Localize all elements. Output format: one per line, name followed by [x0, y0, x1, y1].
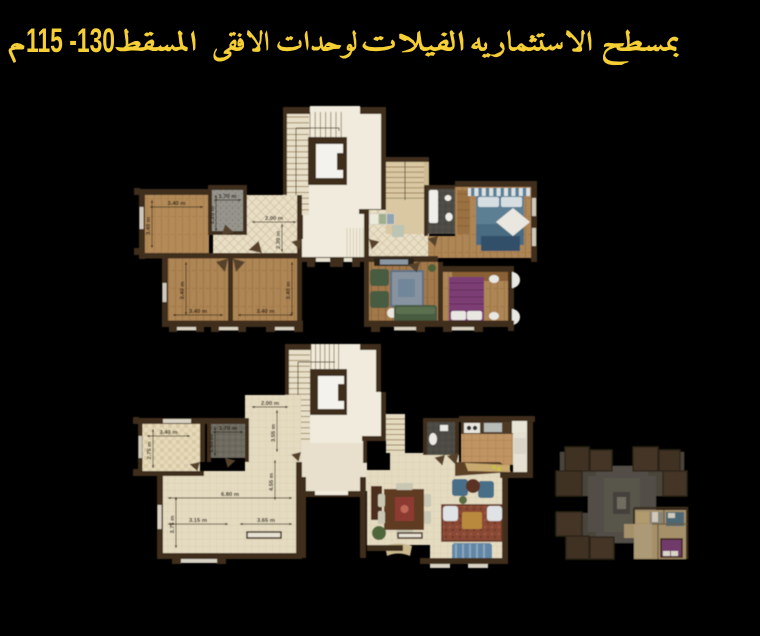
svg-text:3.15 m: 3.15 m — [189, 518, 207, 524]
svg-text:3.40 m: 3.40 m — [256, 309, 274, 315]
svg-text:4.55 m: 4.55 m — [269, 473, 275, 491]
svg-text:3.55 m: 3.55 m — [271, 424, 277, 442]
svg-text:3.65 m: 3.65 m — [257, 518, 275, 524]
svg-text:1.55 m: 1.55 m — [209, 434, 215, 452]
svg-text:2.00 m: 2.00 m — [261, 401, 279, 407]
svg-text:3.40 m: 3.40 m — [189, 309, 207, 315]
svg-text:3.40 m: 3.40 m — [146, 217, 152, 235]
svg-text:3.40 m: 3.40 m — [159, 430, 177, 436]
svg-text:2.20 m: 2.20 m — [210, 206, 216, 224]
svg-text:115 -130: 115 -130 — [26, 22, 115, 60]
svg-text:1.70 m: 1.70 m — [218, 194, 236, 200]
svg-text:2.30 m: 2.30 m — [276, 231, 282, 249]
svg-text:1.70 m: 1.70 m — [219, 426, 237, 432]
svg-text:3.40 m: 3.40 m — [286, 281, 292, 299]
svg-text:3.40 m: 3.40 m — [180, 281, 186, 299]
svg-text:2.75 m: 2.75 m — [147, 441, 153, 459]
svg-text:6.80 m: 6.80 m — [221, 492, 239, 498]
svg-text:3.75 m: 3.75 m — [170, 515, 176, 533]
svg-text:3.40 m: 3.40 m — [167, 201, 185, 207]
svg-text:2.00 m: 2.00 m — [265, 216, 283, 222]
